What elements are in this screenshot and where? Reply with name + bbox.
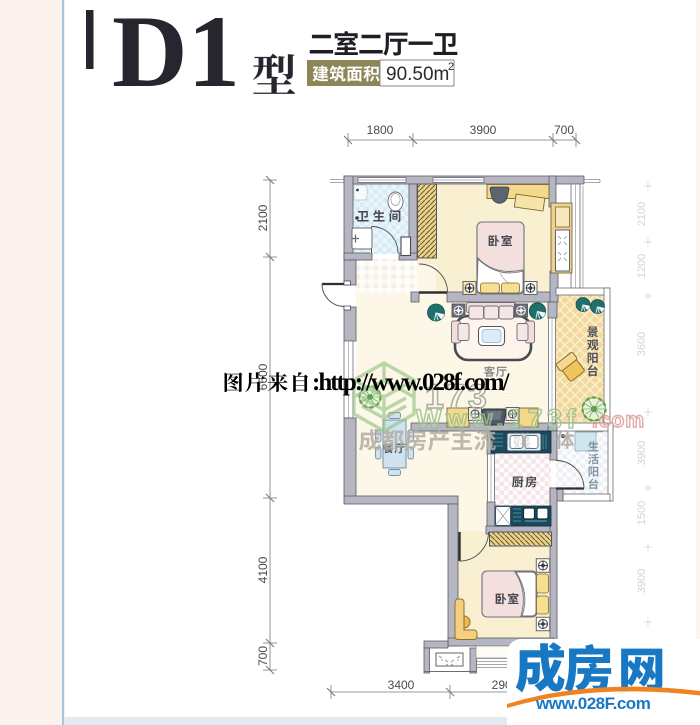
svg-text:3400: 3400 <box>388 678 415 692</box>
svg-text:1200: 1200 <box>636 254 648 278</box>
svg-text:www.028F.com: www.028F.com <box>535 694 651 713</box>
svg-text::http://www.028f.com/: :http://www.028f.com/ <box>312 369 511 396</box>
svg-text:Www.173f: Www.173f <box>416 404 580 434</box>
svg-text:2100: 2100 <box>636 202 648 226</box>
svg-text:3900: 3900 <box>636 441 648 465</box>
svg-text:90.50m: 90.50m <box>386 64 449 85</box>
svg-text:1500: 1500 <box>636 501 648 525</box>
svg-text:1800: 1800 <box>367 123 394 137</box>
svg-text:2100: 2100 <box>256 204 270 231</box>
svg-text:3600: 3600 <box>636 332 648 356</box>
svg-text:700: 700 <box>554 123 574 137</box>
svg-text:D1: D1 <box>112 0 240 109</box>
svg-text:4100: 4100 <box>256 556 270 583</box>
svg-text:700: 700 <box>256 646 270 666</box>
svg-text:.com: .com <box>592 409 645 432</box>
svg-text:3900: 3900 <box>470 123 497 137</box>
svg-text:2: 2 <box>448 61 454 73</box>
svg-text:3900: 3900 <box>636 569 648 593</box>
